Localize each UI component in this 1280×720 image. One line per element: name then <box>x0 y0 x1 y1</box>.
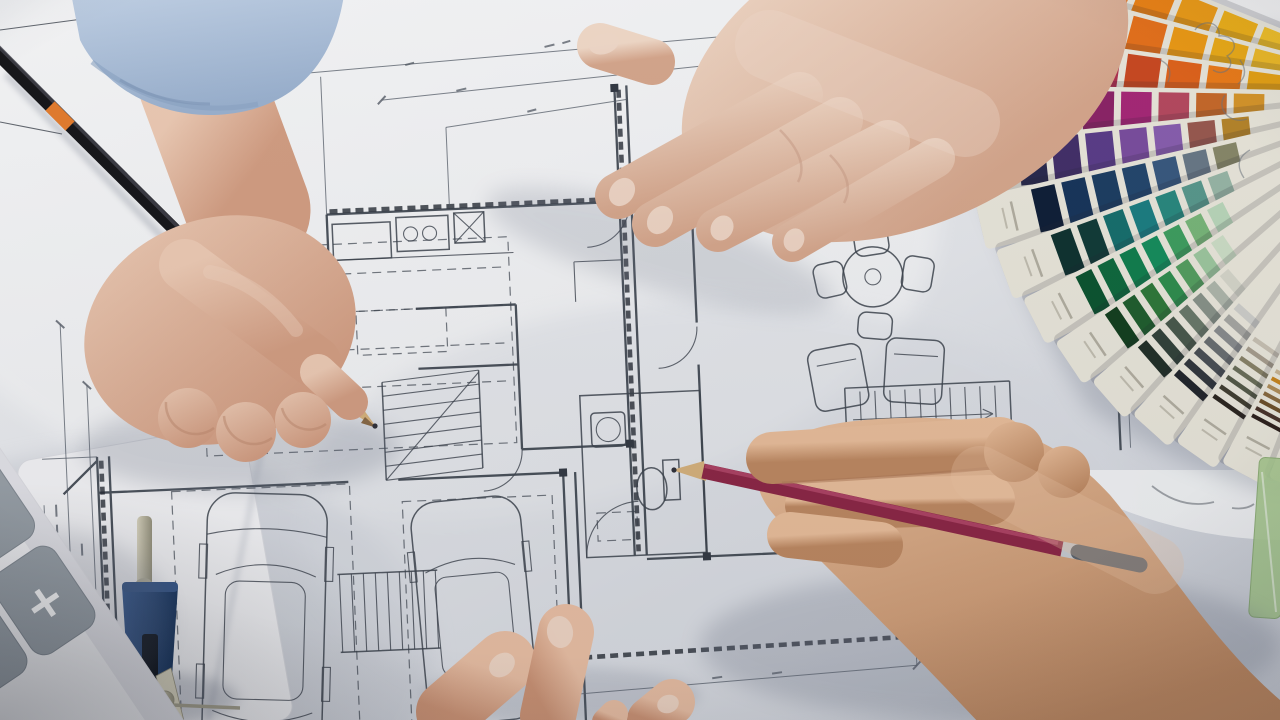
curled-finger-1 <box>158 388 218 448</box>
curled-finger-3 <box>275 392 331 448</box>
photo-canvas: + = <box>0 0 1280 720</box>
pencil-graphite-tip <box>372 423 377 428</box>
finger-d <box>606 714 614 720</box>
curled-finger-2 <box>216 402 276 462</box>
maroon-pencil-tip <box>671 467 676 472</box>
left-index-grip <box>318 372 350 402</box>
photo-architects-blueprint: + = <box>0 0 1280 720</box>
right-thumb <box>790 535 880 545</box>
